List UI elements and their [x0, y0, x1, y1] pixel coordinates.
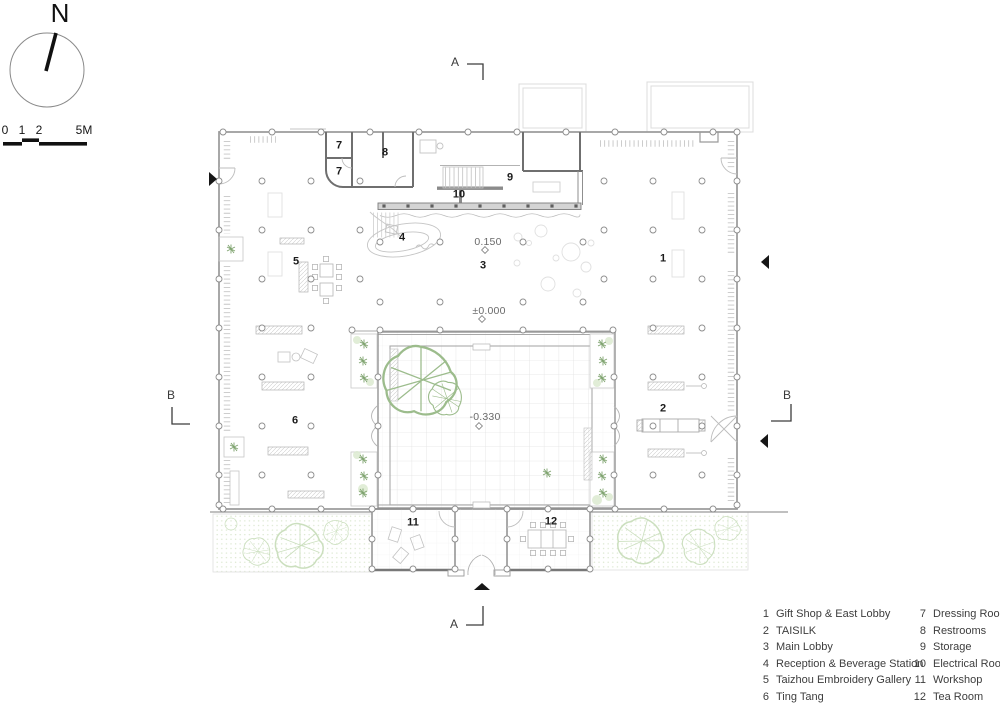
room-label-5: 5	[293, 257, 299, 268]
room-label-6: 6	[292, 416, 298, 427]
room-label-8: 8	[382, 148, 388, 159]
section-b-right: B	[783, 389, 791, 401]
room-label-2: 2	[660, 404, 666, 415]
legend-item: 9Storage	[912, 641, 1000, 658]
room-label-12: 12	[545, 517, 557, 528]
legend-item: 4Reception & Beverage Station	[760, 658, 923, 675]
room-label-11: 11	[407, 518, 419, 529]
room-label-10: 10	[453, 190, 465, 201]
floor-plan-drawing	[0, 0, 1000, 706]
legend-item: 2TAISILK	[760, 625, 923, 642]
room-label-4: 4	[399, 233, 405, 244]
legend-item: 11Workshop	[912, 674, 1000, 691]
legend-item: 12Tea Room	[912, 691, 1000, 706]
legend-item: 6Ting Tang	[760, 691, 923, 706]
section-b-left: B	[167, 389, 175, 401]
corridor-wall	[578, 171, 583, 205]
east-entry-arrow-lower	[760, 434, 768, 448]
legend-item: 5Taizhou Embroidery Gallery	[760, 674, 923, 691]
east-entry-arrow-upper	[761, 255, 769, 269]
elevation-courtyard: -0.330	[470, 412, 501, 423]
north-label: N	[51, 0, 70, 26]
pavilions	[372, 509, 590, 576]
room-label-7a: 7	[336, 141, 342, 152]
main-entrance-arrow	[474, 583, 490, 590]
elevation-lobby: 0.150	[474, 237, 501, 248]
section-a-top: A	[451, 56, 459, 68]
legend-item: 8Restrooms	[912, 625, 1000, 642]
west-entry-arrow	[209, 172, 217, 186]
scale-bar	[3, 138, 87, 145]
legend-item: 10Electrical Room	[912, 658, 1000, 675]
gallery-furniture	[219, 237, 342, 505]
north-arrow	[10, 33, 84, 107]
roof-outlines	[519, 82, 753, 132]
scale-tick-0: 0	[2, 124, 9, 136]
scale-tick-5m: 5M	[76, 124, 93, 136]
reception-desk	[365, 132, 718, 262]
room-label-1: 1	[660, 254, 666, 265]
legend-item: 1Gift Shop & East Lobby	[760, 608, 923, 625]
scale-tick-2: 2	[36, 124, 43, 136]
legend-item: 3Main Lobby	[760, 641, 923, 658]
scale-tick-1: 1	[19, 124, 26, 136]
legend-item: 7Dressing Rooms	[912, 608, 1000, 625]
lobby-stones	[514, 225, 594, 297]
legend-column-2: 7Dressing Rooms 8Restrooms 9Storage 10El…	[912, 608, 1000, 706]
room-label-3: 3	[480, 261, 486, 272]
stairs	[370, 167, 483, 237]
elevation-ground: ±0.000	[472, 306, 505, 317]
floor-plan-sheet: N 0 1 2 5M A A B B 0.150 ±0.000 -0.330 1…	[0, 0, 1000, 706]
room-label-9: 9	[507, 173, 513, 184]
section-a-bottom: A	[450, 618, 458, 630]
legend-column-1: 1Gift Shop & East Lobby 2TAISILK 3Main L…	[760, 608, 923, 706]
room-label-7b: 7	[336, 167, 342, 178]
